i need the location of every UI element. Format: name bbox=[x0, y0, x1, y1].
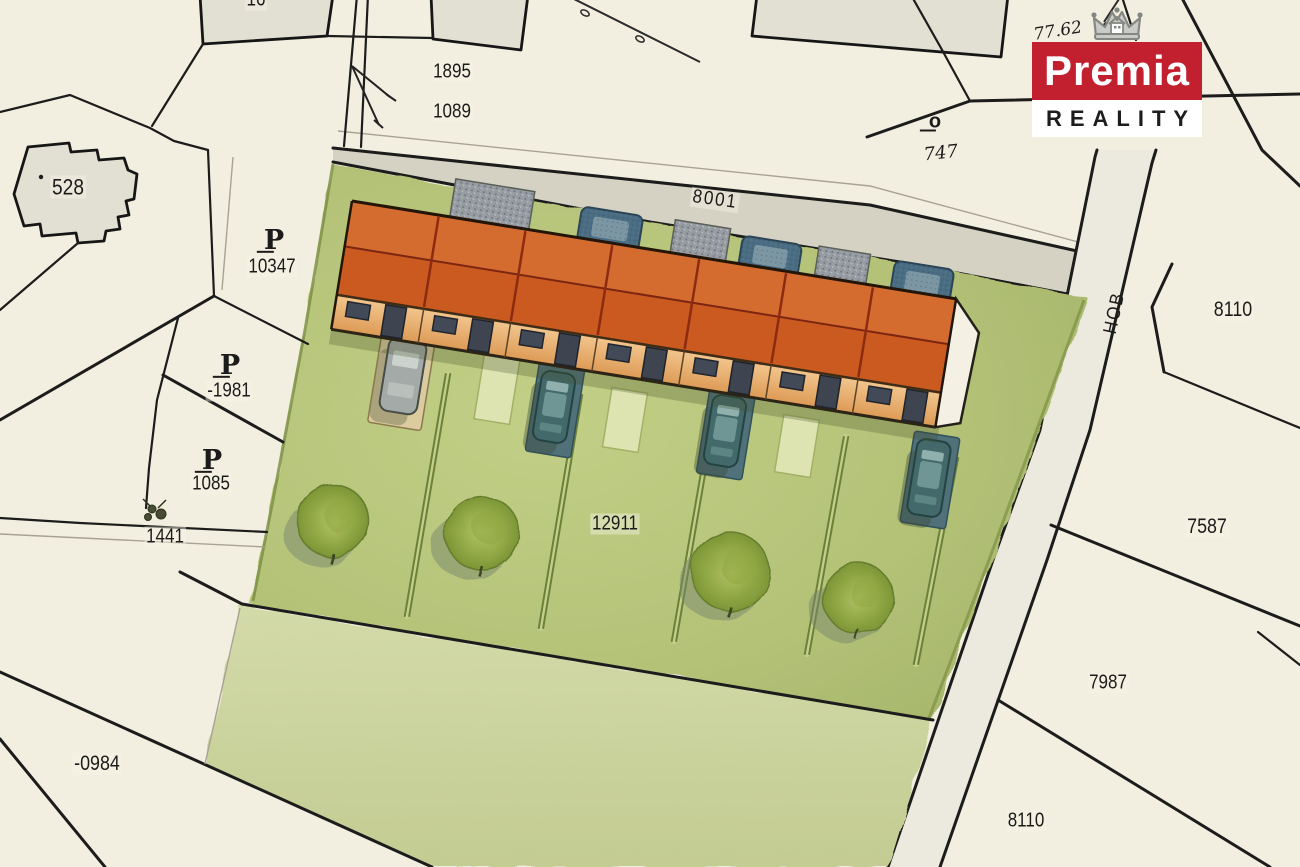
parcel-label-7587: 7587 bbox=[1185, 516, 1228, 538]
crown-icon bbox=[1032, 6, 1202, 42]
parcel-label-16-cut: 16 bbox=[245, 0, 267, 11]
logo-brand-text: Premia bbox=[1044, 47, 1190, 95]
cadastral-symbol-p: P bbox=[202, 447, 222, 475]
parcel-label-12911: 12911 bbox=[590, 514, 639, 535]
parcel-label-7987: 7987 bbox=[1087, 673, 1128, 694]
cadastral-symbol-p: P bbox=[220, 352, 240, 380]
parcel-label-1085: 1085 bbox=[190, 474, 231, 495]
logo-tagline-box: REALITY bbox=[1032, 100, 1202, 137]
cadastral-symbol-p: P bbox=[264, 227, 284, 255]
parcel-label-10347: 10347 bbox=[247, 257, 298, 278]
parcel-label-1441: 1441 bbox=[144, 527, 185, 548]
parcel-label-8110-a: 8110 bbox=[1212, 299, 1254, 321]
logo-tagline-text: REALITY bbox=[1038, 106, 1196, 132]
site-plan: 528 P 10347 P -1981 P 1085 1441 -0984 18… bbox=[0, 0, 1300, 867]
parcel-label-8110-b: 8110 bbox=[1006, 811, 1046, 832]
cadastral-symbol-o: o bbox=[929, 112, 941, 133]
logo-brand-box: Premia bbox=[1032, 42, 1202, 100]
premia-reality-logo: Premia REALITY bbox=[1032, 6, 1202, 137]
parcel-label-1981: -1981 bbox=[206, 381, 253, 402]
parcel-label-1089: 1089 bbox=[431, 102, 472, 123]
parcel-label-747: 747 bbox=[921, 143, 961, 166]
parcel-label-1895: 1895 bbox=[431, 62, 472, 83]
parcel-label-0984: -0984 bbox=[72, 753, 121, 775]
parcel-label-528: 528 bbox=[50, 175, 85, 198]
